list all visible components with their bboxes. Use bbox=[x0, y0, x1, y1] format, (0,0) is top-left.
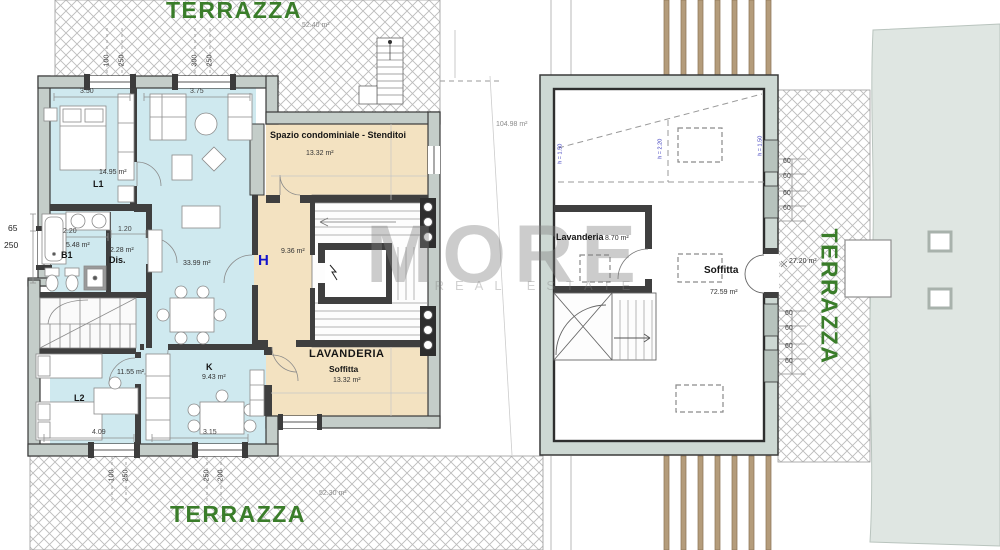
dim-60-7: 60 bbox=[785, 358, 793, 365]
l1-width-dim: 3.50 bbox=[80, 88, 94, 95]
dim-60-3: 60 bbox=[783, 205, 791, 212]
dis-area: 2.28 m² bbox=[110, 247, 134, 254]
height-note-0: h = 1.50 bbox=[558, 137, 564, 171]
l2-name: L2 bbox=[74, 394, 85, 403]
dim-60-2: 60 bbox=[783, 190, 791, 197]
lavanderia-name: LAVANDERIA bbox=[309, 349, 384, 360]
b1-area: 5.48 m² bbox=[66, 242, 90, 249]
right-total-area: 104.98 m² bbox=[496, 121, 528, 128]
lavanderia-subname: Soffitta bbox=[329, 365, 358, 374]
terrace-bottom-label: TERRAZZA bbox=[170, 503, 306, 526]
elevator-symbol: H bbox=[258, 253, 269, 268]
terrace-top-area: 52.40 m² bbox=[302, 22, 330, 29]
plan-labels: TERRAZZA 52.40 m² TERRAZZA 52.30 m² 100 … bbox=[0, 0, 1000, 550]
attic-terrace-area: 27.20 m² bbox=[789, 258, 817, 265]
attic-lavanderia-name: Lavanderia bbox=[556, 233, 604, 242]
k-name: K bbox=[206, 363, 213, 372]
terrace-top-label: TERRAZZA bbox=[166, 0, 302, 22]
dim-60-5: 60 bbox=[785, 325, 793, 332]
attic-terrace-label: TERRAZZA bbox=[818, 192, 841, 402]
dim-top-3: 250 bbox=[207, 48, 214, 74]
living-area: 33.99 m² bbox=[183, 260, 211, 267]
dim-bottom-3: 200 bbox=[218, 463, 225, 489]
k-width-dim: 3.15 bbox=[203, 429, 217, 436]
height-note-2: h = 1.50 bbox=[758, 129, 764, 163]
dim-60-1: 60 bbox=[783, 173, 791, 180]
floorplan-canvas: MORE REAL ESTATE TERRAZZA 52.40 m² TERRA… bbox=[0, 0, 1000, 550]
l1-area: 14.95 m² bbox=[99, 169, 127, 176]
dim-left-0: 65 bbox=[8, 224, 17, 233]
height-note-1: h = 2.20 bbox=[658, 132, 664, 166]
terrace-bottom-area: 52.30 m² bbox=[319, 490, 347, 497]
b1-width-dim: 2.20 bbox=[63, 228, 77, 235]
l2-area: 11.55 m² bbox=[117, 369, 144, 376]
dis-width-dim: 1.20 bbox=[118, 226, 132, 233]
spazio-name: Spazio condominiale - Stenditoi bbox=[270, 131, 406, 140]
lavanderia-area: 13.32 m² bbox=[333, 377, 361, 384]
living-width-dim: 3.75 bbox=[190, 88, 204, 95]
dim-bottom-1: 250 bbox=[123, 463, 130, 489]
dim-60-0: 60 bbox=[783, 158, 791, 165]
dim-60-6: 60 bbox=[785, 343, 793, 350]
soffitta-name: Soffitta bbox=[704, 266, 738, 276]
l1-name: L1 bbox=[93, 180, 104, 189]
l2-width-dim: 4.09 bbox=[92, 429, 106, 436]
k-area: 9.43 m² bbox=[202, 374, 226, 381]
dim-60-4: 60 bbox=[785, 310, 793, 317]
b1-name: B1 bbox=[61, 251, 73, 260]
hall-area: 9.36 m² bbox=[281, 248, 305, 255]
dim-bottom-0: 100 bbox=[109, 463, 116, 489]
spazio-area: 13.32 m² bbox=[306, 150, 334, 157]
soffitta-area: 72.59 m² bbox=[710, 289, 738, 296]
dim-top-1: 250 bbox=[119, 48, 126, 74]
attic-lavanderia-area: 8.70 m² bbox=[605, 235, 629, 242]
dim-left-1: 250 bbox=[4, 241, 18, 250]
dim-bottom-2: 250 bbox=[204, 463, 211, 489]
dim-top-2: 300 bbox=[192, 48, 199, 74]
dim-top-0: 100 bbox=[104, 48, 111, 74]
dis-name: Dis. bbox=[109, 256, 126, 265]
